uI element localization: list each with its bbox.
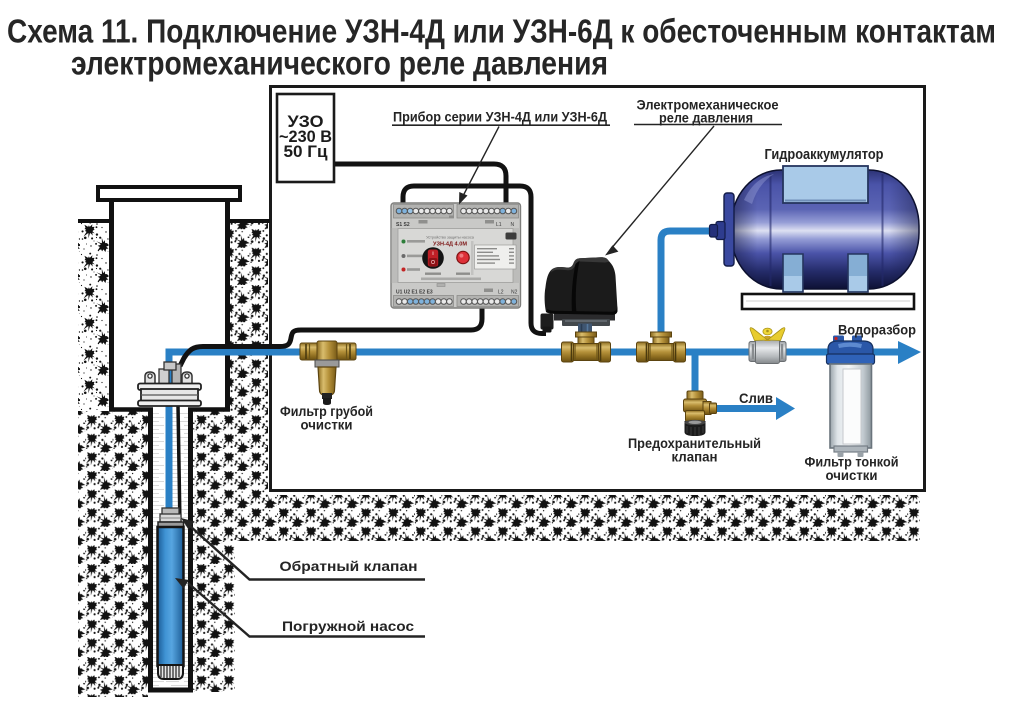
svg-text:реле давления: реле давления — [659, 110, 753, 126]
svg-text:УЗН-4Д 4.0М: УЗН-4Д 4.0М — [433, 242, 467, 248]
svg-text:Слив: Слив — [739, 390, 773, 406]
svg-text:N: N — [511, 222, 515, 228]
svg-text:N2: N2 — [511, 290, 518, 296]
svg-text:Обратный клапан: Обратный клапан — [280, 559, 418, 574]
svg-text:Погружной насос: Погружной насос — [282, 619, 415, 634]
svg-text:S1 S2: S1 S2 — [396, 222, 410, 228]
svg-text:очистки: очистки — [301, 418, 353, 433]
svg-text:Водоразбор: Водоразбор — [838, 322, 916, 338]
svg-text:Прибор серии УЗН-4Д или УЗН-6Д: Прибор серии УЗН-4Д или УЗН-6Д — [393, 109, 607, 125]
svg-text:Устройство защиты насоса: Устройство защиты насоса — [426, 236, 475, 240]
svg-text:клапан: клапан — [672, 450, 718, 465]
svg-text:электромеханического реле давл: электромеханического реле давления — [71, 45, 608, 82]
svg-text:L2: L2 — [498, 290, 504, 296]
svg-text:50 Гц: 50 Гц — [284, 143, 328, 161]
svg-text:L1: L1 — [496, 222, 502, 228]
svg-text:U1 U2 E1 E2 E3: U1 U2 E1 E2 E3 — [396, 290, 433, 296]
svg-text:Гидроаккумулятор: Гидроаккумулятор — [765, 147, 884, 163]
svg-text:очистки: очистки — [826, 468, 878, 483]
